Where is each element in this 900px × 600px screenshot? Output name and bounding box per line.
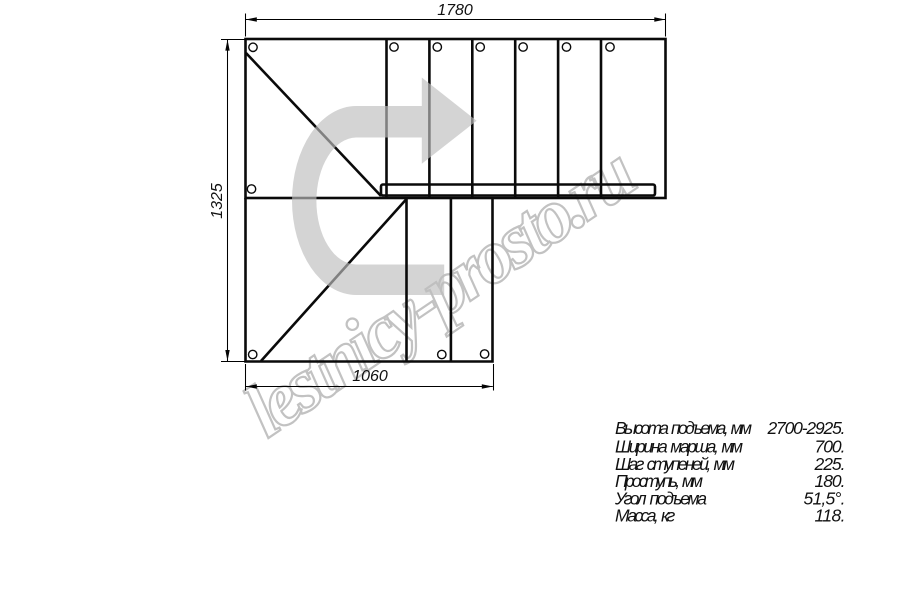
- svg-text:Высота подъема, мм: Высота подъема, мм: [615, 418, 752, 438]
- svg-text:1780: 1780: [437, 2, 473, 19]
- svg-text:118.: 118.: [815, 506, 846, 526]
- svg-text:Масса, кг: Масса, кг: [615, 506, 676, 526]
- svg-text:2700-2925.: 2700-2925.: [767, 418, 846, 438]
- svg-text:1060: 1060: [352, 368, 388, 385]
- svg-text:1325: 1325: [209, 183, 226, 219]
